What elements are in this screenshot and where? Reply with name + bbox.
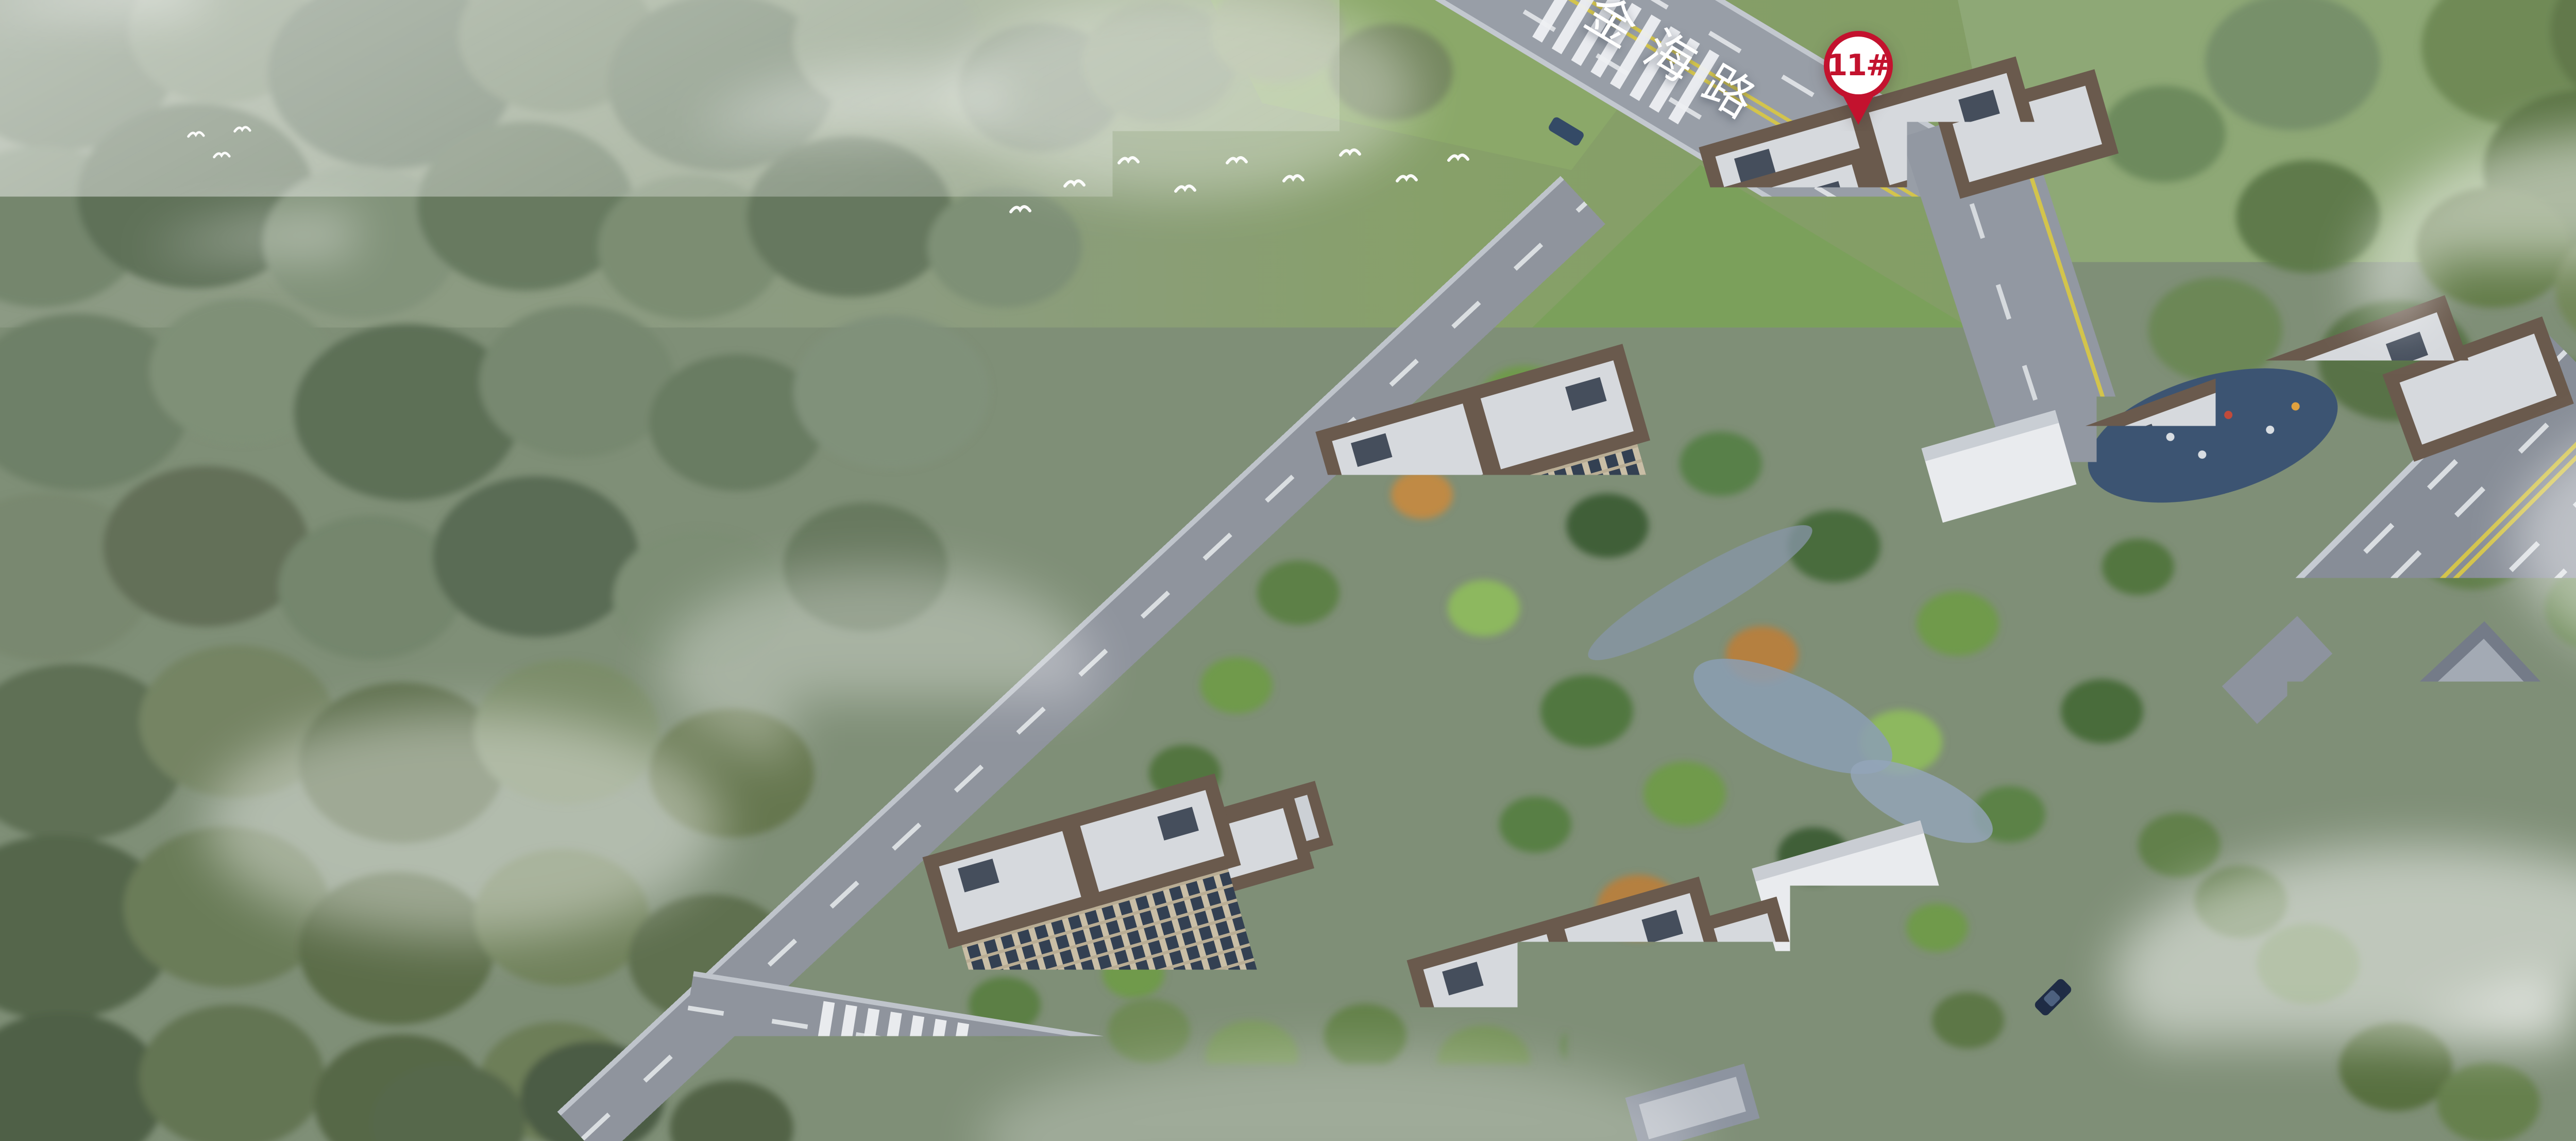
- aerial-view: 金海路 祥泰路 华泰路 安泰路 幼儿园 .kg-badge{left:3433p…: [0, 0, 2576, 1141]
- marker-circle: 1#: [1018, 775, 1087, 844]
- marker-circle: 4#: [1330, 606, 1399, 675]
- marker-label: 11#: [1827, 51, 1889, 80]
- marker-label: 2#: [1521, 885, 1564, 914]
- kindergarten-badge: 幼儿园: [1711, 853, 1826, 898]
- marker-label: 4#: [1343, 626, 1385, 656]
- marker-label: 12#: [2170, 278, 2232, 307]
- road-label-xiangtai: 祥泰路: [1076, 545, 1274, 737]
- marker-6[interactable]: 6#: [1425, 356, 1494, 449]
- marker-9[interactable]: 9#: [1633, 149, 1702, 243]
- kindergarten-label: 幼儿园: [1727, 864, 1817, 890]
- annotations: 金海路 祥泰路 华泰路 安泰路 幼儿园 .kg-badge{left:3433p…: [0, 0, 2576, 1141]
- marker-circle: 12#: [2166, 258, 2235, 327]
- marker-7[interactable]: 7#: [1986, 462, 2055, 556]
- road-label-jinhai: 金海路: [1574, 0, 1787, 141]
- marker-12[interactable]: 12#: [2166, 258, 2235, 351]
- marker-label: 1#: [1030, 795, 1073, 824]
- marker-circle: 9#: [1633, 149, 1702, 219]
- marker-label: 6#: [1437, 376, 1480, 405]
- marker-11[interactable]: 11#: [1824, 31, 1893, 125]
- marker-2[interactable]: 2#: [1509, 865, 1578, 959]
- marker-circle: 6#: [1425, 356, 1494, 425]
- marker-label: 7#: [1999, 482, 2042, 511]
- road-label-antai: 安泰路: [1995, 855, 2190, 1050]
- marker-label: 9#: [1646, 170, 1689, 199]
- marker-circle: 11#: [1824, 31, 1893, 100]
- marker-circle: 2#: [1509, 865, 1578, 934]
- marker-circle: 7#: [1986, 462, 2055, 531]
- marker-1[interactable]: 1#: [1018, 775, 1087, 868]
- road-label-huatai: 华泰路: [969, 1047, 1157, 1141]
- marker-4[interactable]: 4#: [1330, 606, 1399, 700]
